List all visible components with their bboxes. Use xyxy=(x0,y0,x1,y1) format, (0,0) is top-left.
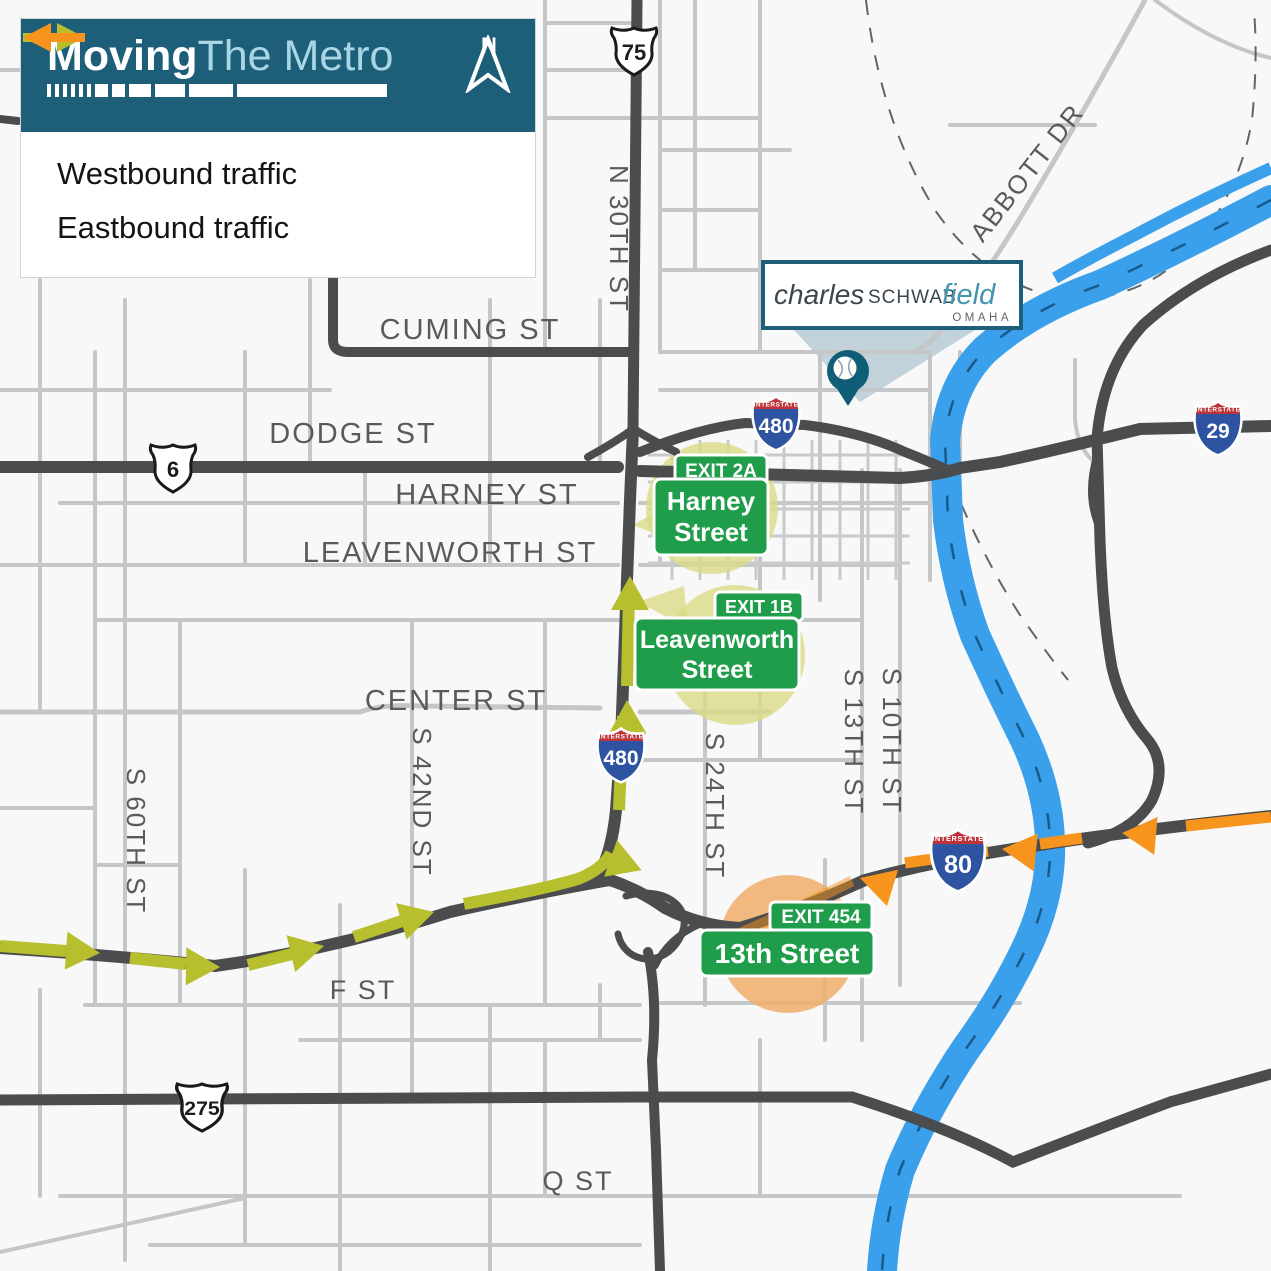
venue-label: charles SCHWAB field OMAHA xyxy=(763,262,1021,328)
venue-name-italic: field xyxy=(942,279,996,311)
svg-text:INTERSTATE: INTERSTATE xyxy=(754,402,799,409)
street-label-s-13th-st: S 13TH ST xyxy=(839,669,869,816)
svg-text:INTERSTATE: INTERSTATE xyxy=(1196,407,1241,414)
street-label-q-st: Q ST xyxy=(542,1166,613,1196)
brand-progress-bar xyxy=(47,84,387,97)
svg-text:75: 75 xyxy=(622,40,646,65)
north-arrow-icon xyxy=(465,35,511,93)
street-label-center-st: CENTER ST xyxy=(365,685,547,717)
venue-city: OMAHA xyxy=(952,312,1012,324)
svg-text:INTERSTATE: INTERSTATE xyxy=(932,834,984,843)
legend-body: Westbound traffic Eastbound traffic xyxy=(21,132,535,246)
svg-text:29: 29 xyxy=(1206,420,1229,443)
legend-row-westbound: Westbound traffic xyxy=(57,156,505,192)
legend-row-eastbound: Eastbound traffic xyxy=(57,210,505,246)
baseball-icon xyxy=(834,357,857,380)
street-label-harney-st: HARNEY ST xyxy=(395,479,578,511)
brand-title: MovingThe Metro xyxy=(47,33,515,79)
svg-text:275: 275 xyxy=(184,1099,219,1120)
brand-light: The Metro xyxy=(197,32,393,80)
street-label-s-60th-st: S 60TH ST xyxy=(121,768,151,915)
svg-text:480: 480 xyxy=(603,747,638,770)
venue-name-script: charles xyxy=(774,279,864,310)
svg-text:INTERSTATE: INTERSTATE xyxy=(599,734,644,741)
street-label-s-42nd-st: S 42ND ST xyxy=(407,727,437,877)
legend-panel: MovingThe Metro N Westbound traffic xyxy=(20,18,536,278)
svg-text:80: 80 xyxy=(944,851,972,879)
svg-text:6: 6 xyxy=(167,457,179,482)
map-page: INTERSTATE 480 INTERSTATE 480 INTERSTATE… xyxy=(0,0,1271,1271)
brand-header: MovingThe Metro N xyxy=(21,19,535,132)
street-label-cuming-st: CUMING ST xyxy=(380,314,561,346)
street-label-s-24th-st: S 24TH ST xyxy=(700,733,730,880)
exit-tab-label: EXIT 1B xyxy=(725,597,793,617)
street-label-f-st: F ST xyxy=(330,975,397,1005)
exit-name-line1: 13th Street xyxy=(715,938,860,969)
exit-name-line1: Harney xyxy=(667,486,756,516)
street-label-n-30th-st: N 30TH ST xyxy=(604,165,634,313)
street-label-dodge-st: DODGE ST xyxy=(269,418,436,450)
exit-name-line2: Street xyxy=(674,517,748,547)
street-label-leavenworth-st: LEAVENWORTH ST xyxy=(303,537,597,569)
north-indicator: N xyxy=(465,35,513,59)
street-label-s-10th-st: S 10TH ST xyxy=(877,668,907,815)
legend-label-westbound: Westbound traffic xyxy=(57,156,297,192)
eastbound-arrow-icon xyxy=(21,19,87,56)
exit-name-line2: Street xyxy=(682,656,754,684)
legend-label-eastbound: Eastbound traffic xyxy=(57,210,289,246)
svg-text:480: 480 xyxy=(758,415,793,438)
exit-name-line1: Leavenworth xyxy=(640,626,794,654)
exit-tab-label: EXIT 454 xyxy=(781,907,861,928)
